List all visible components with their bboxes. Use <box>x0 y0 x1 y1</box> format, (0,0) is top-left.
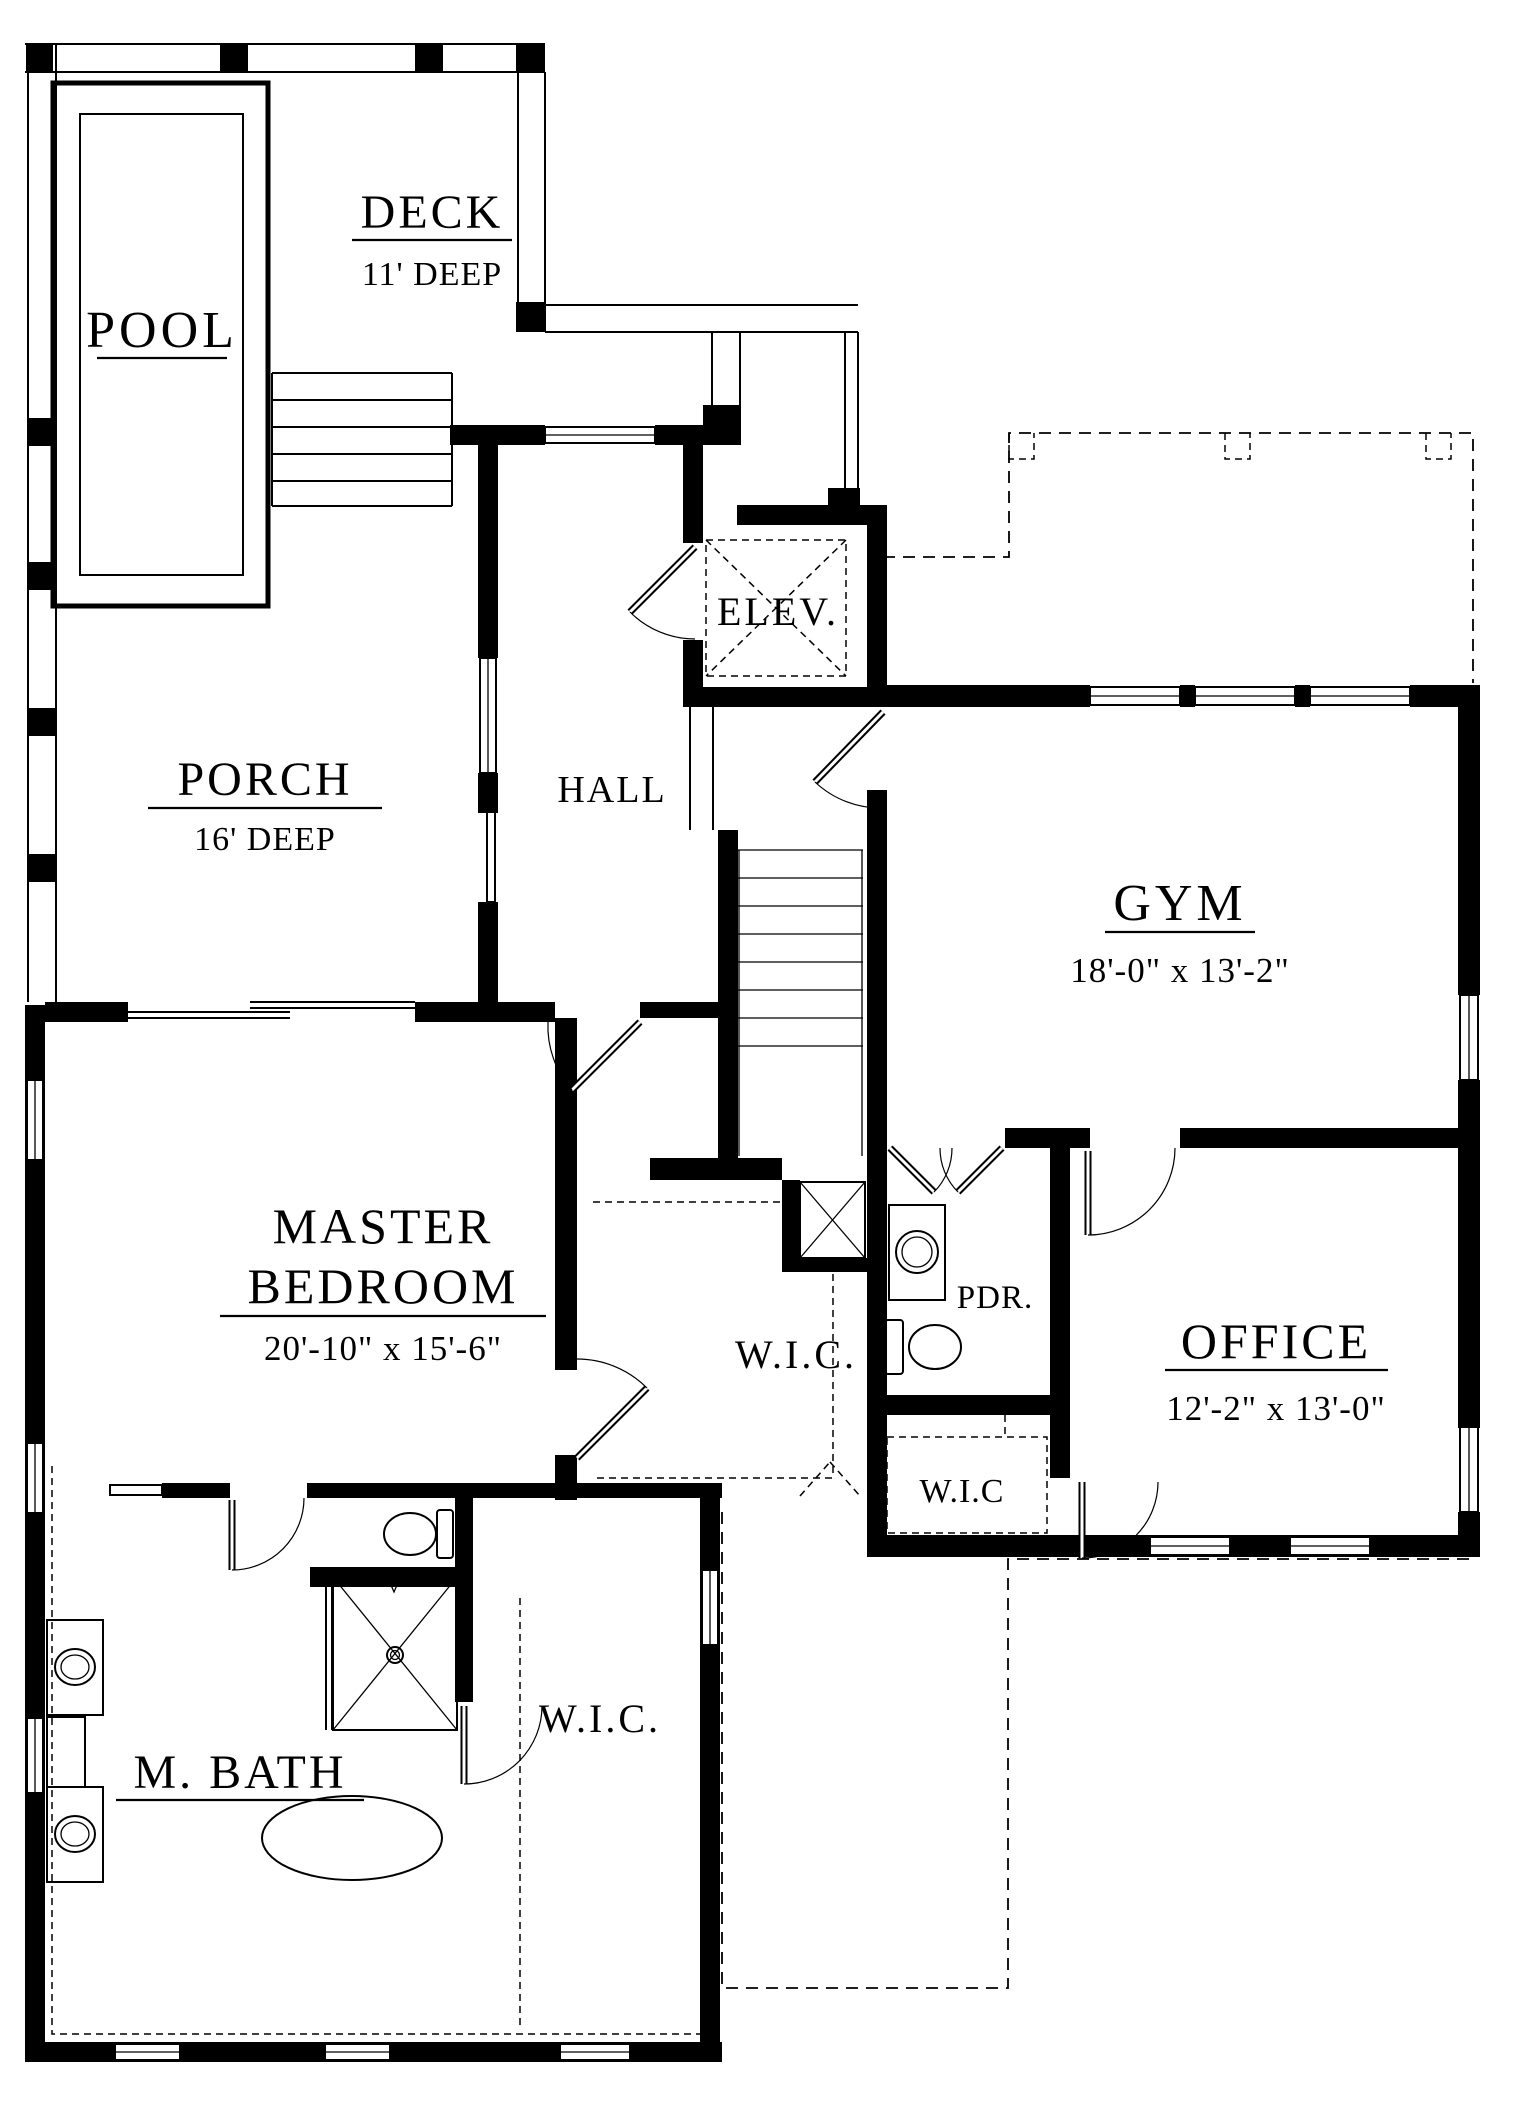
slider-door-hall <box>487 810 495 902</box>
pdr-label: PDR. <box>957 1280 1033 1316</box>
door-bedroom-wic <box>577 1359 647 1458</box>
deck-label: DECK <box>361 186 504 239</box>
fixture-vanity-1 <box>47 1620 103 1715</box>
window-bottom-2 <box>325 2044 390 2060</box>
doors <box>110 547 1175 1784</box>
office-wic-label: W.I.C <box>920 1473 1005 1510</box>
porch-depth: 16' DEEP <box>194 821 336 858</box>
pocket-door-mbath <box>110 1485 162 1495</box>
window-office-bottom-2 <box>1290 1537 1370 1555</box>
door-elevator <box>630 547 695 639</box>
fixture-vanity-2 <box>47 1787 103 1882</box>
window-gym-right <box>1460 995 1478 1080</box>
staircase <box>690 707 863 1156</box>
window-left-2 <box>27 1443 43 1513</box>
office-dims: 12'-2" x 13'-0" <box>1166 1389 1386 1428</box>
gym-label: GYM <box>1113 875 1246 932</box>
office-label: OFFICE <box>1181 1313 1371 1369</box>
walls <box>25 405 1480 2062</box>
windows <box>27 427 1478 2060</box>
porch-label: PORCH <box>177 753 352 806</box>
window-wic-right <box>702 1570 718 1645</box>
deck-stairs <box>272 373 452 506</box>
master-bedroom-label-1: MASTER <box>273 1198 494 1254</box>
hall-label: HALL <box>557 769 666 811</box>
door-mbath-entry <box>232 1498 304 1570</box>
deck-depth: 11' DEEP <box>362 256 502 293</box>
window-left-3 <box>27 1718 43 1793</box>
window-office-bottom-1 <box>1150 1537 1230 1555</box>
fixture-washer <box>889 1205 945 1300</box>
window-hall-top <box>545 427 655 443</box>
door-office <box>1088 1148 1175 1235</box>
master-bedroom-dims: 20'-10" x 15'-6" <box>264 1329 502 1368</box>
floor-plan-page: POOL DECK 11' DEEP PORCH 16' DEEP HALL E… <box>0 0 1520 2104</box>
door-pdr-left <box>890 1148 952 1192</box>
window-office-right <box>1460 1427 1478 1512</box>
chase-shaft <box>800 1182 865 1258</box>
slider-door-bedroom <box>128 1002 415 1018</box>
fixture-shower <box>326 1577 457 1730</box>
door-bath-wic <box>464 1706 542 1784</box>
fixture-toilet-mbath <box>384 1510 453 1558</box>
bath-wic-label: W.I.C. <box>539 1696 661 1741</box>
master-bedroom-label-2: BEDROOM <box>247 1258 518 1314</box>
floor-plan-drawing: POOL DECK 11' DEEP PORCH 16' DEEP HALL E… <box>0 0 1520 2104</box>
roof-outline-dashed-lower <box>722 1162 1473 1988</box>
master-wic-label: W.I.C. <box>735 1332 857 1377</box>
gym-dims: 18'-0" x 13'-2" <box>1070 951 1290 990</box>
window-bottom-3 <box>560 2044 630 2060</box>
window-gym-top-3 <box>1310 687 1410 705</box>
window-gym-top-1 <box>1090 687 1180 705</box>
fixture-toilet-pdr <box>885 1320 961 1374</box>
elevator-label: ELEV. <box>717 589 839 634</box>
door-pdr-right <box>940 1148 1002 1192</box>
mbath-label: M. BATH <box>133 1746 346 1799</box>
roof-outline-dashed-upper <box>883 433 1473 683</box>
fixture-vanity-knee <box>47 1717 85 1787</box>
window-bottom-1 <box>115 2044 180 2060</box>
window-gym-top-2 <box>1195 687 1295 705</box>
window-porch-hall <box>480 658 496 773</box>
fixture-tub <box>262 1796 442 1880</box>
window-left-1 <box>27 1080 43 1160</box>
pool-label: POOL <box>86 302 238 359</box>
